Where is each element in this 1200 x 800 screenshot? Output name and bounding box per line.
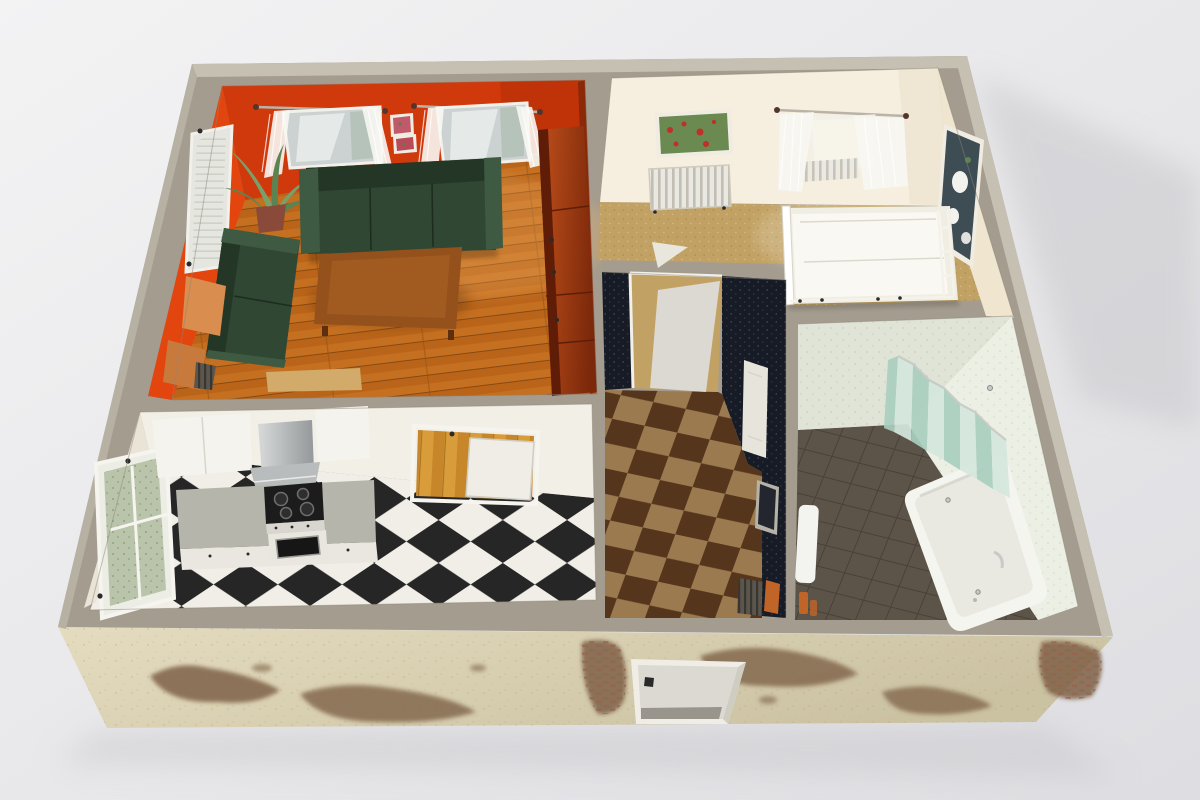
drawer-handle — [247, 553, 250, 556]
bath-accessory — [799, 592, 808, 614]
rod-end — [97, 593, 102, 598]
plant-pot — [256, 204, 286, 233]
rail-knob — [898, 296, 902, 300]
bedroom-radiator — [649, 165, 731, 214]
rail-knob — [798, 299, 802, 303]
poppy — [667, 127, 673, 133]
screen-panel — [927, 380, 944, 460]
cabinet-knob — [552, 270, 556, 274]
living-room — [148, 80, 610, 400]
tub-drain — [973, 598, 977, 602]
hallway-wall-left-of-door — [602, 272, 633, 390]
rod-finial — [253, 104, 259, 110]
stove-knob — [291, 526, 294, 529]
front-facade — [58, 627, 1113, 728]
front-door-handle — [644, 677, 654, 687]
sofa-armrest — [484, 157, 503, 250]
radiator-body — [649, 165, 731, 210]
wall-fitting — [988, 386, 993, 391]
bathroom-door — [742, 360, 768, 458]
poppy — [712, 120, 716, 124]
radiator-foot — [722, 206, 726, 210]
bed — [782, 206, 960, 310]
rail-knob — [876, 297, 880, 301]
burner — [298, 489, 309, 500]
bed-duvet — [792, 212, 948, 298]
rod-finial — [411, 103, 417, 109]
poppy-painting — [655, 109, 733, 158]
sink-fixture — [795, 505, 819, 584]
picture-detail — [398, 122, 401, 125]
poppy — [674, 142, 679, 147]
low-table — [266, 368, 362, 392]
oven-window — [276, 536, 320, 558]
plaster-chip — [759, 696, 777, 704]
wall-fitting — [976, 590, 980, 594]
poppy — [697, 129, 704, 136]
wall-pictures — [390, 113, 417, 154]
bath-accessory — [810, 600, 817, 616]
rod-end — [198, 129, 203, 134]
table-leg — [322, 326, 328, 336]
burner — [275, 493, 288, 506]
kitchen-door — [412, 426, 538, 504]
drawer-handle — [347, 549, 350, 552]
poppy — [682, 122, 687, 127]
plaster-chip — [470, 665, 486, 672]
picture-detail — [402, 142, 405, 145]
hallway — [602, 242, 786, 618]
plaster-chip — [252, 664, 272, 672]
upper-cabinet — [315, 406, 370, 462]
picture-flowers — [393, 116, 411, 134]
sofa-large — [299, 157, 503, 264]
wall-fitting — [946, 498, 950, 502]
radiator-foot — [653, 210, 657, 214]
radiator-under-shelf — [194, 362, 216, 390]
flower — [961, 232, 971, 244]
hall-orange-object — [764, 580, 780, 614]
sofa-armrest — [299, 168, 320, 254]
apartment-3d-render — [0, 0, 1200, 800]
painting-canvas — [659, 113, 729, 154]
open-door-panel — [466, 438, 534, 500]
counter-run — [176, 480, 378, 570]
rod-end — [187, 262, 192, 267]
table-top-sheen — [327, 255, 450, 318]
screen-panel — [960, 404, 977, 479]
flower — [952, 171, 968, 193]
burner — [301, 503, 314, 516]
burner — [281, 508, 292, 519]
front-door — [631, 659, 746, 724]
drawer-handle — [209, 555, 212, 558]
cabinet-knob — [555, 318, 559, 322]
rail-knob — [820, 298, 824, 302]
exposed-brick — [1039, 641, 1102, 699]
rod-finial — [774, 107, 780, 113]
floorplan-render-stage — [0, 0, 1200, 800]
cabinet-knob — [550, 238, 554, 242]
kitchen — [84, 404, 596, 618]
table-leg — [448, 330, 454, 340]
stove-knob — [307, 525, 310, 528]
side-shelf — [182, 276, 226, 336]
rod-finial — [382, 108, 388, 114]
window-radiator — [800, 158, 859, 182]
cooktop — [264, 482, 324, 524]
stove-knob — [275, 527, 278, 530]
mirror-glass — [758, 484, 776, 530]
rod-finial — [537, 109, 543, 115]
front-door-threshold — [641, 707, 722, 719]
poppy — [703, 141, 709, 147]
hall-radiator — [737, 578, 763, 616]
door-handle — [450, 432, 455, 437]
hall-mirror — [755, 480, 779, 535]
